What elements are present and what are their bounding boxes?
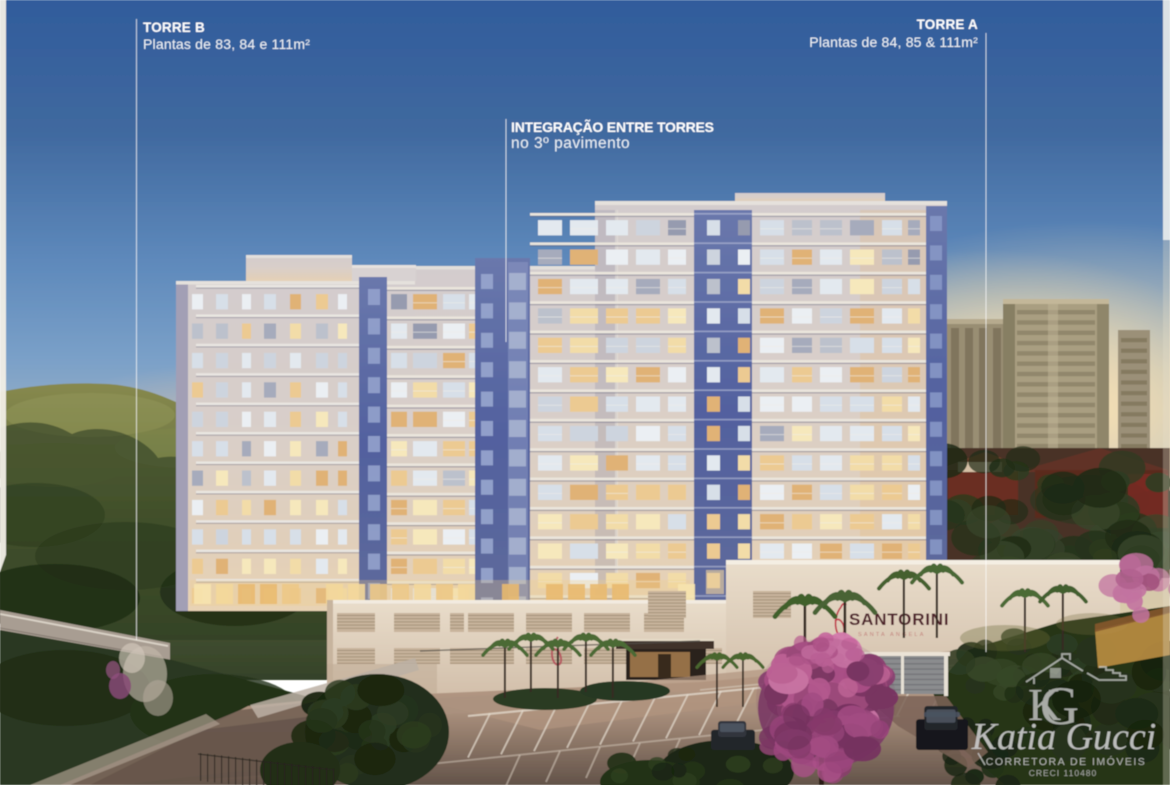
svg-text:TORRE A: TORRE A	[917, 17, 978, 32]
svg-text:CORRETORA DE IMÓVEIS: CORRETORA DE IMÓVEIS	[986, 755, 1147, 768]
svg-text:SANTA ANGELA: SANTA ANGELA	[858, 632, 926, 638]
svg-text:INTEGRAÇÃO ENTRE TORRES: INTEGRAÇÃO ENTRE TORRES	[511, 118, 714, 135]
svg-text:Plantas de 83, 84 e 111m²: Plantas de 83, 84 e 111m²	[143, 36, 310, 52]
svg-text:Katia Gucci: Katia Gucci	[971, 716, 1157, 758]
svg-text:no 3º pavimento: no 3º pavimento	[511, 135, 630, 152]
svg-text:SANTORINI: SANTORINI	[849, 610, 949, 629]
svg-text:TORRE B: TORRE B	[143, 20, 205, 35]
svg-text:Plantas de 84, 85 & 111m²: Plantas de 84, 85 & 111m²	[809, 34, 978, 50]
svg-text:CRECI 110480: CRECI 110480	[1029, 768, 1098, 778]
